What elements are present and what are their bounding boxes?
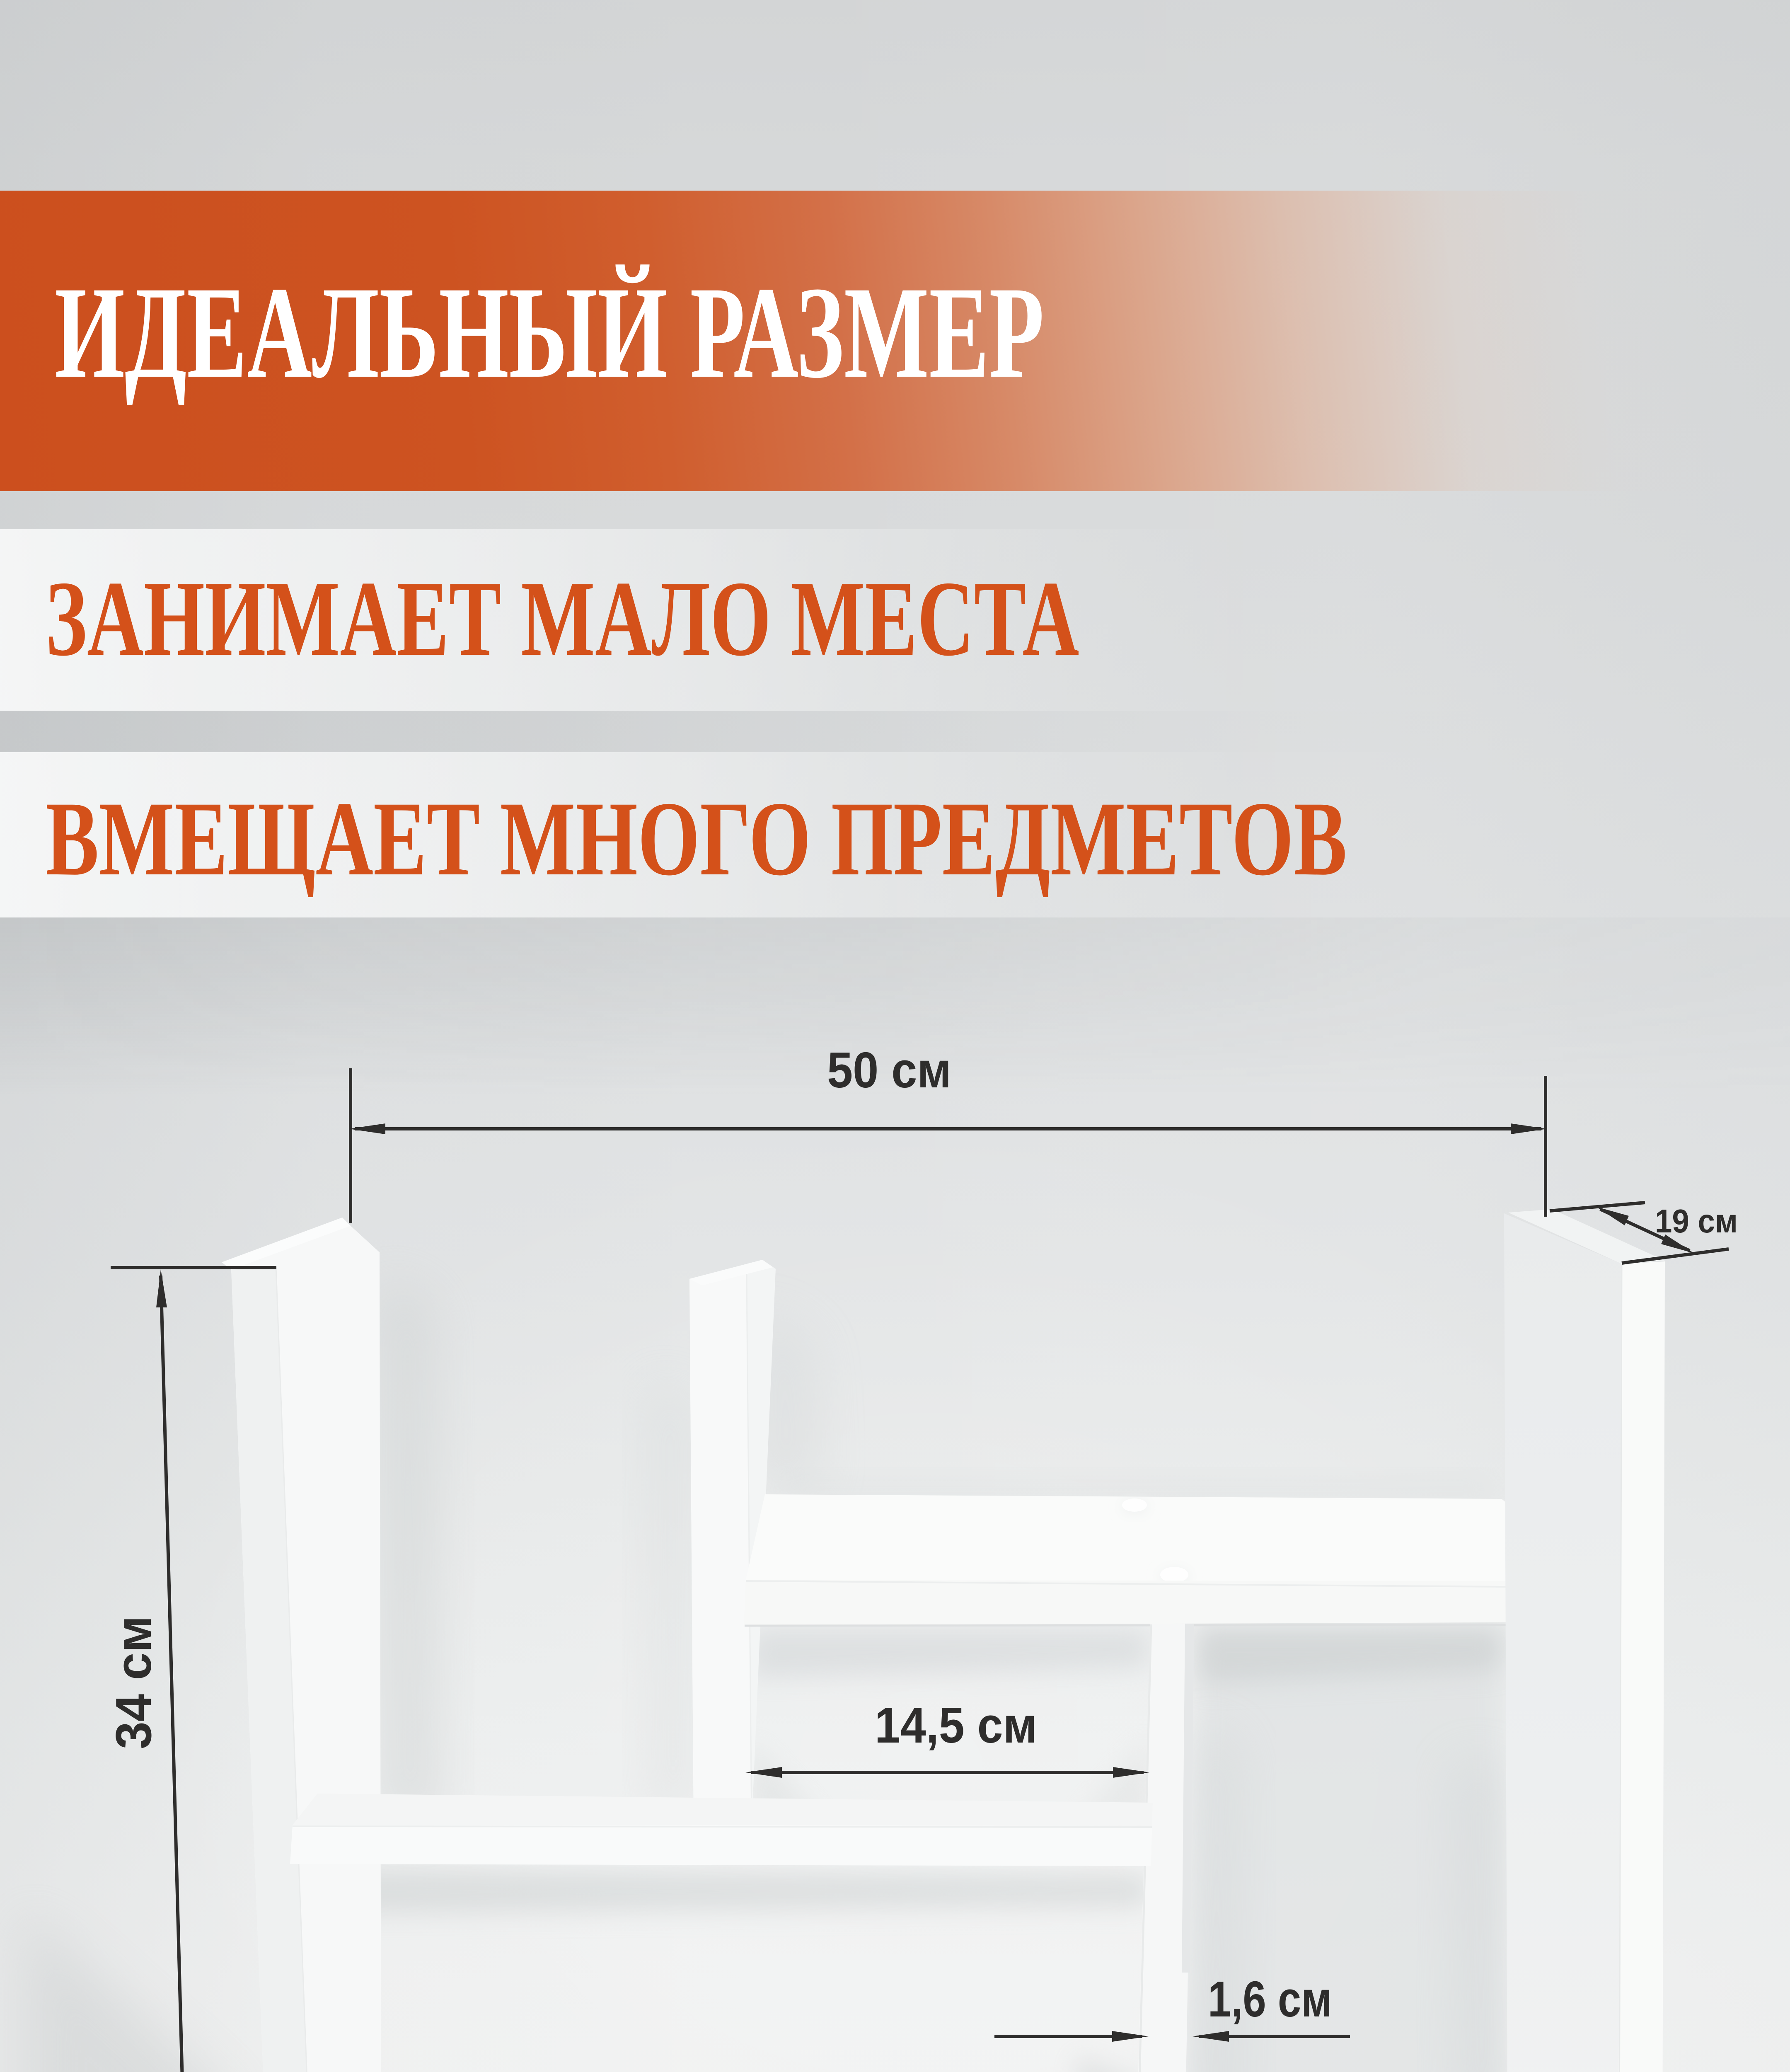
- svg-text:50 см: 50 см: [827, 1042, 951, 1098]
- svg-text:19 см: 19 см: [1655, 1203, 1738, 1239]
- svg-text:34 см: 34 см: [105, 1616, 162, 1749]
- svg-text:14,5 см: 14,5 см: [875, 1697, 1037, 1753]
- svg-text:1,6 см: 1,6 см: [1208, 1971, 1332, 2027]
